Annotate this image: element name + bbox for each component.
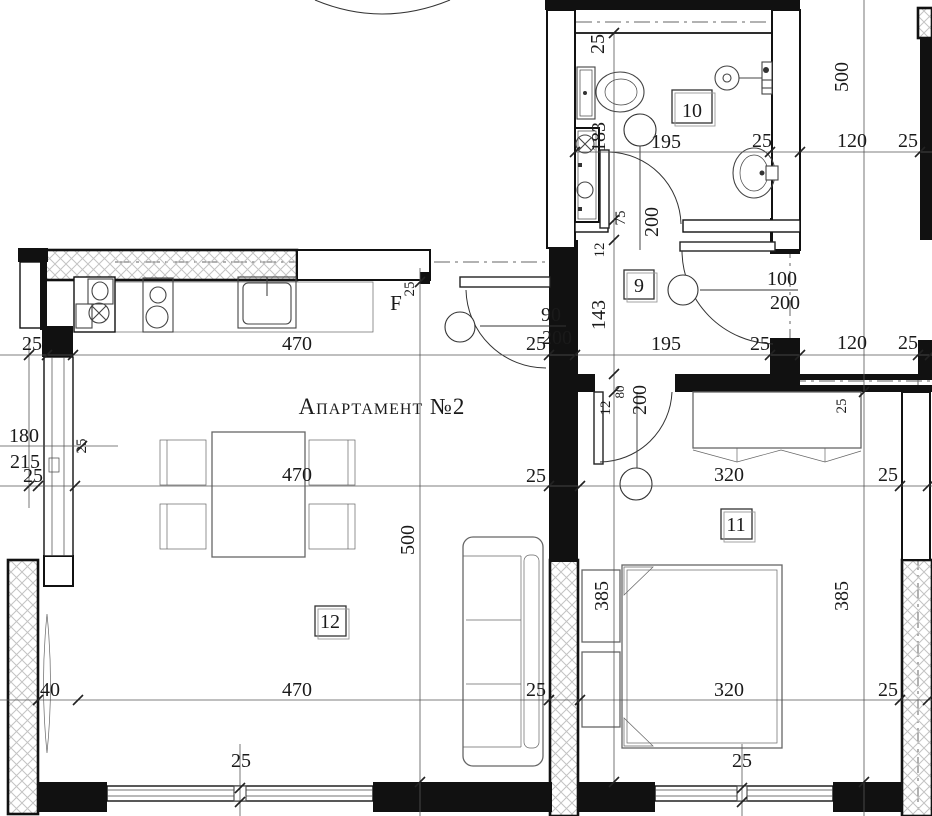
dim-living-width-bottom: 470 (282, 679, 312, 701)
wall-bathroom-top (545, 0, 800, 10)
dim-corridor-width-top: 120 (837, 130, 867, 152)
wall-west-lower (8, 560, 38, 814)
windows (44, 357, 833, 801)
door-mark-circle (620, 468, 652, 500)
dim-window-wall: 25 (74, 439, 90, 454)
floor-plan: Апартамент №2 F 10 9 11 12 25 470 25 195… (0, 0, 932, 816)
wall-bathroom-left (547, 10, 575, 248)
dim-wall-mid-3: 25 (526, 679, 546, 701)
pillow (624, 718, 653, 746)
kitchen-sink (238, 277, 296, 328)
room-number-bathroom: 10 (682, 100, 702, 122)
dim-west-offset: 40 (40, 679, 60, 701)
dim-bedroom-depth-left: 385 (591, 581, 613, 611)
dining-table (160, 432, 355, 557)
door-entrance (668, 242, 775, 344)
dim-bedroom-width-bottom: 320 (714, 679, 744, 701)
room-number-living: 12 (320, 611, 340, 633)
wall-bathroom-right (772, 10, 800, 250)
kitchen (74, 277, 373, 332)
dim-living-depth: 500 (397, 525, 419, 555)
wall-east-top-stub (918, 8, 932, 38)
dim-wall-entry: 25 (750, 333, 770, 355)
dim-living-width-top: 470 (282, 333, 312, 355)
plan-title: Апартамент №2 (299, 394, 466, 419)
bed (622, 565, 782, 748)
wall-bedroom-top-left (549, 374, 595, 392)
door-mark-circle (445, 312, 475, 342)
dim-wall-west: 25 (22, 333, 42, 355)
dim-wall-mid-2: 25 (526, 465, 546, 487)
dim-bathroom-width: 195 (651, 131, 681, 153)
dim-wall-east: 25 (898, 332, 918, 354)
dim-balcony-door-height: 200 (542, 327, 572, 349)
dim-top-wall: 25 (402, 282, 418, 297)
walls (8, 0, 932, 816)
wall-east-lower (902, 560, 932, 816)
wall-living-bottom-left (38, 782, 107, 812)
wall-west-upper-line (40, 250, 47, 330)
wall-top-outline-segment (297, 250, 430, 280)
fridge-label: F (390, 291, 402, 315)
room-number-hall: 9 (634, 275, 644, 297)
toilet (577, 67, 644, 119)
dim-hall-depth: 143 (588, 300, 610, 330)
dim-bath-door-height: 200 (641, 207, 663, 237)
neighbour-door-arc (315, 0, 450, 14)
dim-window-width: 180 (9, 425, 39, 447)
pillow (624, 567, 653, 595)
wall-kitchen-top (45, 250, 297, 280)
dim-entry-door-width: 100 (767, 268, 797, 290)
wall-living-bedroom (550, 560, 578, 816)
wall-west-window-jamb (42, 326, 73, 357)
wall-entry-corner (770, 338, 800, 392)
dim-corridor-width: 120 (837, 332, 867, 354)
dim-entry-door-height: 200 (770, 292, 800, 314)
floor-plan-drawing: Апартамент №2 F 10 9 11 12 25 470 25 195… (0, 0, 932, 816)
sofa (463, 537, 543, 766)
room-boxes (315, 90, 755, 639)
dim-living-window: 25 (231, 750, 251, 772)
axis-lines (115, 10, 930, 816)
dim-corridor-length: 500 (831, 62, 853, 92)
wall-bedroom-bottom-right (833, 782, 902, 812)
wall-living-bottom-right (373, 782, 552, 812)
dim-bedroom-width-top: 320 (714, 464, 744, 486)
wall-bedroom-top-right (675, 374, 775, 392)
door-mark-circle (668, 275, 698, 305)
wall-corridor-bottom-a (800, 374, 932, 380)
wall-hall-living (549, 240, 578, 562)
furniture (44, 392, 862, 766)
dim-bedroom-depth-right: 385 (831, 581, 853, 611)
stove (143, 278, 173, 332)
dim-wall-east-top: 25 (898, 130, 918, 152)
kitchen-counter (75, 282, 373, 332)
dim-hall-width: 195 (651, 333, 681, 355)
dim-bathroom-wall-top: 25 (587, 34, 609, 54)
shower (715, 62, 772, 94)
dim-bath-partition: 12 (592, 243, 608, 258)
window-west (44, 357, 73, 556)
window-bedroom-south (655, 786, 833, 801)
dim-bed-partition: 12 (598, 401, 614, 416)
wall-corridor-right-upper (920, 38, 932, 240)
doors (445, 114, 775, 500)
wall-bedroom-right-upper (902, 392, 930, 560)
dim-bathroom-depth: 183 (588, 122, 610, 152)
wall-bedroom-bottom-left (578, 782, 655, 812)
dim-window-height: 215 (10, 451, 40, 473)
dim-wall-east-3: 25 (878, 679, 898, 701)
dim-bed-door-width: 80 (612, 386, 627, 399)
room-number-bedroom: 11 (726, 514, 745, 536)
dim-bed-door-height: 200 (629, 385, 651, 415)
dim-wall-east-2: 25 (878, 464, 898, 486)
wall-corridor-right-lower (918, 340, 932, 376)
wall-bathroom-bottom-right (683, 220, 800, 232)
dim-wardrobe-wall: 25 (834, 399, 850, 414)
dim-living-width-mid: 470 (282, 464, 312, 486)
dim-bath-door-width: 75 (613, 211, 629, 226)
dim-balcony-door-width: 90 (541, 304, 561, 326)
wall-west-step (44, 556, 73, 586)
dim-wall-bath-right: 25 (752, 130, 772, 152)
dim-bedroom-window: 25 (732, 750, 752, 772)
